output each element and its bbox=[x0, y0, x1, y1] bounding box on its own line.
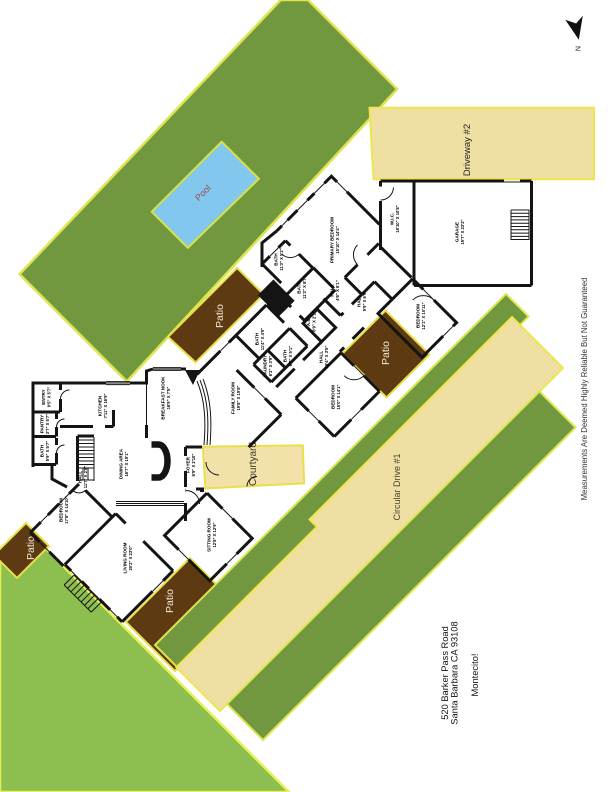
svg-text:20'2" X 23'0": 20'2" X 23'0" bbox=[128, 545, 133, 570]
svg-text:BREAKFAST NOOK: BREAKFAST NOOK bbox=[161, 376, 166, 420]
svg-text:16'9" X 7'5": 16'9" X 7'5" bbox=[166, 387, 171, 410]
svg-text:8'9" X 2'1": 8'9" X 2'1" bbox=[312, 311, 317, 331]
svg-text:18'10" X 10'8": 18'10" X 10'8" bbox=[395, 205, 400, 232]
svg-text:N: N bbox=[576, 46, 583, 51]
svg-text:3'7" X 5'7": 3'7" X 5'7" bbox=[45, 414, 50, 434]
svg-text:Santa Barbara CA 93108: Santa Barbara CA 93108 bbox=[450, 621, 460, 724]
svg-text:11'2" X 8'7": 11'2" X 8'7" bbox=[302, 276, 307, 299]
svg-text:BATH: BATH bbox=[274, 253, 279, 266]
svg-text:Montecito!: Montecito! bbox=[470, 654, 480, 697]
svg-text:11'7" X 2'8": 11'7" X 2'8" bbox=[83, 466, 88, 489]
svg-text:BEDROOM: BEDROOM bbox=[59, 498, 64, 522]
svg-text:15'10" X 14'4": 15'10" X 14'4" bbox=[335, 226, 340, 253]
svg-text:W.I.C.: W.I.C. bbox=[390, 213, 395, 226]
svg-text:19'8" X 19'8": 19'8" X 19'8" bbox=[236, 385, 241, 410]
svg-text:4'6" X 6'1": 4'6" X 6'1" bbox=[335, 280, 340, 300]
svg-text:SITTING ROOM: SITTING ROOM bbox=[207, 518, 212, 552]
svg-text:HALL: HALL bbox=[78, 471, 83, 483]
svg-text:19'4" X 3'5": 19'4" X 3'5" bbox=[324, 346, 329, 369]
svg-text:Driveway #2: Driveway #2 bbox=[462, 124, 473, 176]
svg-text:7'11" X 16'9": 7'11" X 16'9" bbox=[103, 394, 108, 419]
svg-text:PANTRY: PANTRY bbox=[40, 415, 45, 433]
svg-text:HALL: HALL bbox=[357, 295, 362, 307]
svg-text:6'9" X 2'10": 6'9" X 2'10" bbox=[191, 454, 196, 477]
svg-text:Patio: Patio bbox=[164, 589, 176, 613]
svg-text:Patio: Patio bbox=[380, 341, 392, 365]
svg-text:12'8" X 12'9": 12'8" X 12'9" bbox=[212, 522, 217, 547]
svg-text:520 Barker Pass Road: 520 Barker Pass Road bbox=[440, 626, 450, 720]
svg-text:PRIMARY BEDROOM: PRIMARY BEDROOM bbox=[330, 217, 335, 263]
svg-text:12'1" X 10'11": 12'1" X 10'11" bbox=[421, 302, 426, 329]
svg-text:6'2" X 3'9": 6'2" X 3'9" bbox=[268, 356, 273, 376]
svg-text:LAUNDRY: LAUNDRY bbox=[263, 355, 268, 377]
svg-text:FAMILY ROOM: FAMILY ROOM bbox=[231, 382, 236, 414]
svg-text:Circular Drive #1: Circular Drive #1 bbox=[392, 453, 402, 520]
svg-text:BEDROOM: BEDROOM bbox=[331, 385, 336, 409]
svg-text:Measurements Are Deemed Highly: Measurements Are Deemed Highly Reliable … bbox=[580, 278, 589, 501]
svg-text:11'3" X 5'2": 11'3" X 5'2" bbox=[279, 248, 284, 271]
svg-text:19'7" X 23'2": 19'7" X 23'2" bbox=[460, 219, 465, 244]
svg-text:BATH: BATH bbox=[40, 444, 45, 457]
svg-text:FOYER: FOYER bbox=[186, 456, 191, 473]
svg-text:BATH: BATH bbox=[283, 349, 288, 362]
svg-text:11'4" X 4'9": 11'4" X 4'9" bbox=[260, 328, 265, 351]
svg-text:DINING AREA: DINING AREA bbox=[119, 448, 124, 479]
svg-text:6'7" X 5'1": 6'7" X 5'1" bbox=[288, 346, 293, 366]
svg-text:BATH: BATH bbox=[297, 281, 302, 294]
svg-text:5'9" X 5'7": 5'9" X 5'7" bbox=[45, 441, 50, 461]
svg-text:HALL: HALL bbox=[319, 351, 324, 363]
svg-text:15'0" X 14'1": 15'0" X 14'1" bbox=[336, 384, 341, 409]
svg-text:BATH: BATH bbox=[255, 332, 260, 345]
svg-text:BEDROOM: BEDROOM bbox=[416, 304, 421, 328]
svg-text:16'7" X 19'1": 16'7" X 19'1" bbox=[124, 451, 129, 476]
svg-text:GARAGE: GARAGE bbox=[455, 222, 460, 242]
svg-text:ENTRY: ENTRY bbox=[41, 389, 46, 404]
svg-text:KITCHEN: KITCHEN bbox=[98, 395, 103, 416]
svg-text:HALL: HALL bbox=[330, 284, 335, 296]
svg-text:9'5" X 5'7": 9'5" X 5'7" bbox=[47, 387, 52, 407]
svg-text:Patio: Patio bbox=[214, 304, 226, 328]
svg-text:17'8" X 14'10": 17'8" X 14'10" bbox=[64, 496, 69, 523]
svg-text:9'9" X 6'9": 9'9" X 6'9" bbox=[362, 291, 367, 311]
svg-text:A.C.: A.C. bbox=[306, 317, 311, 326]
svg-text:LIVING ROOM: LIVING ROOM bbox=[123, 542, 128, 573]
